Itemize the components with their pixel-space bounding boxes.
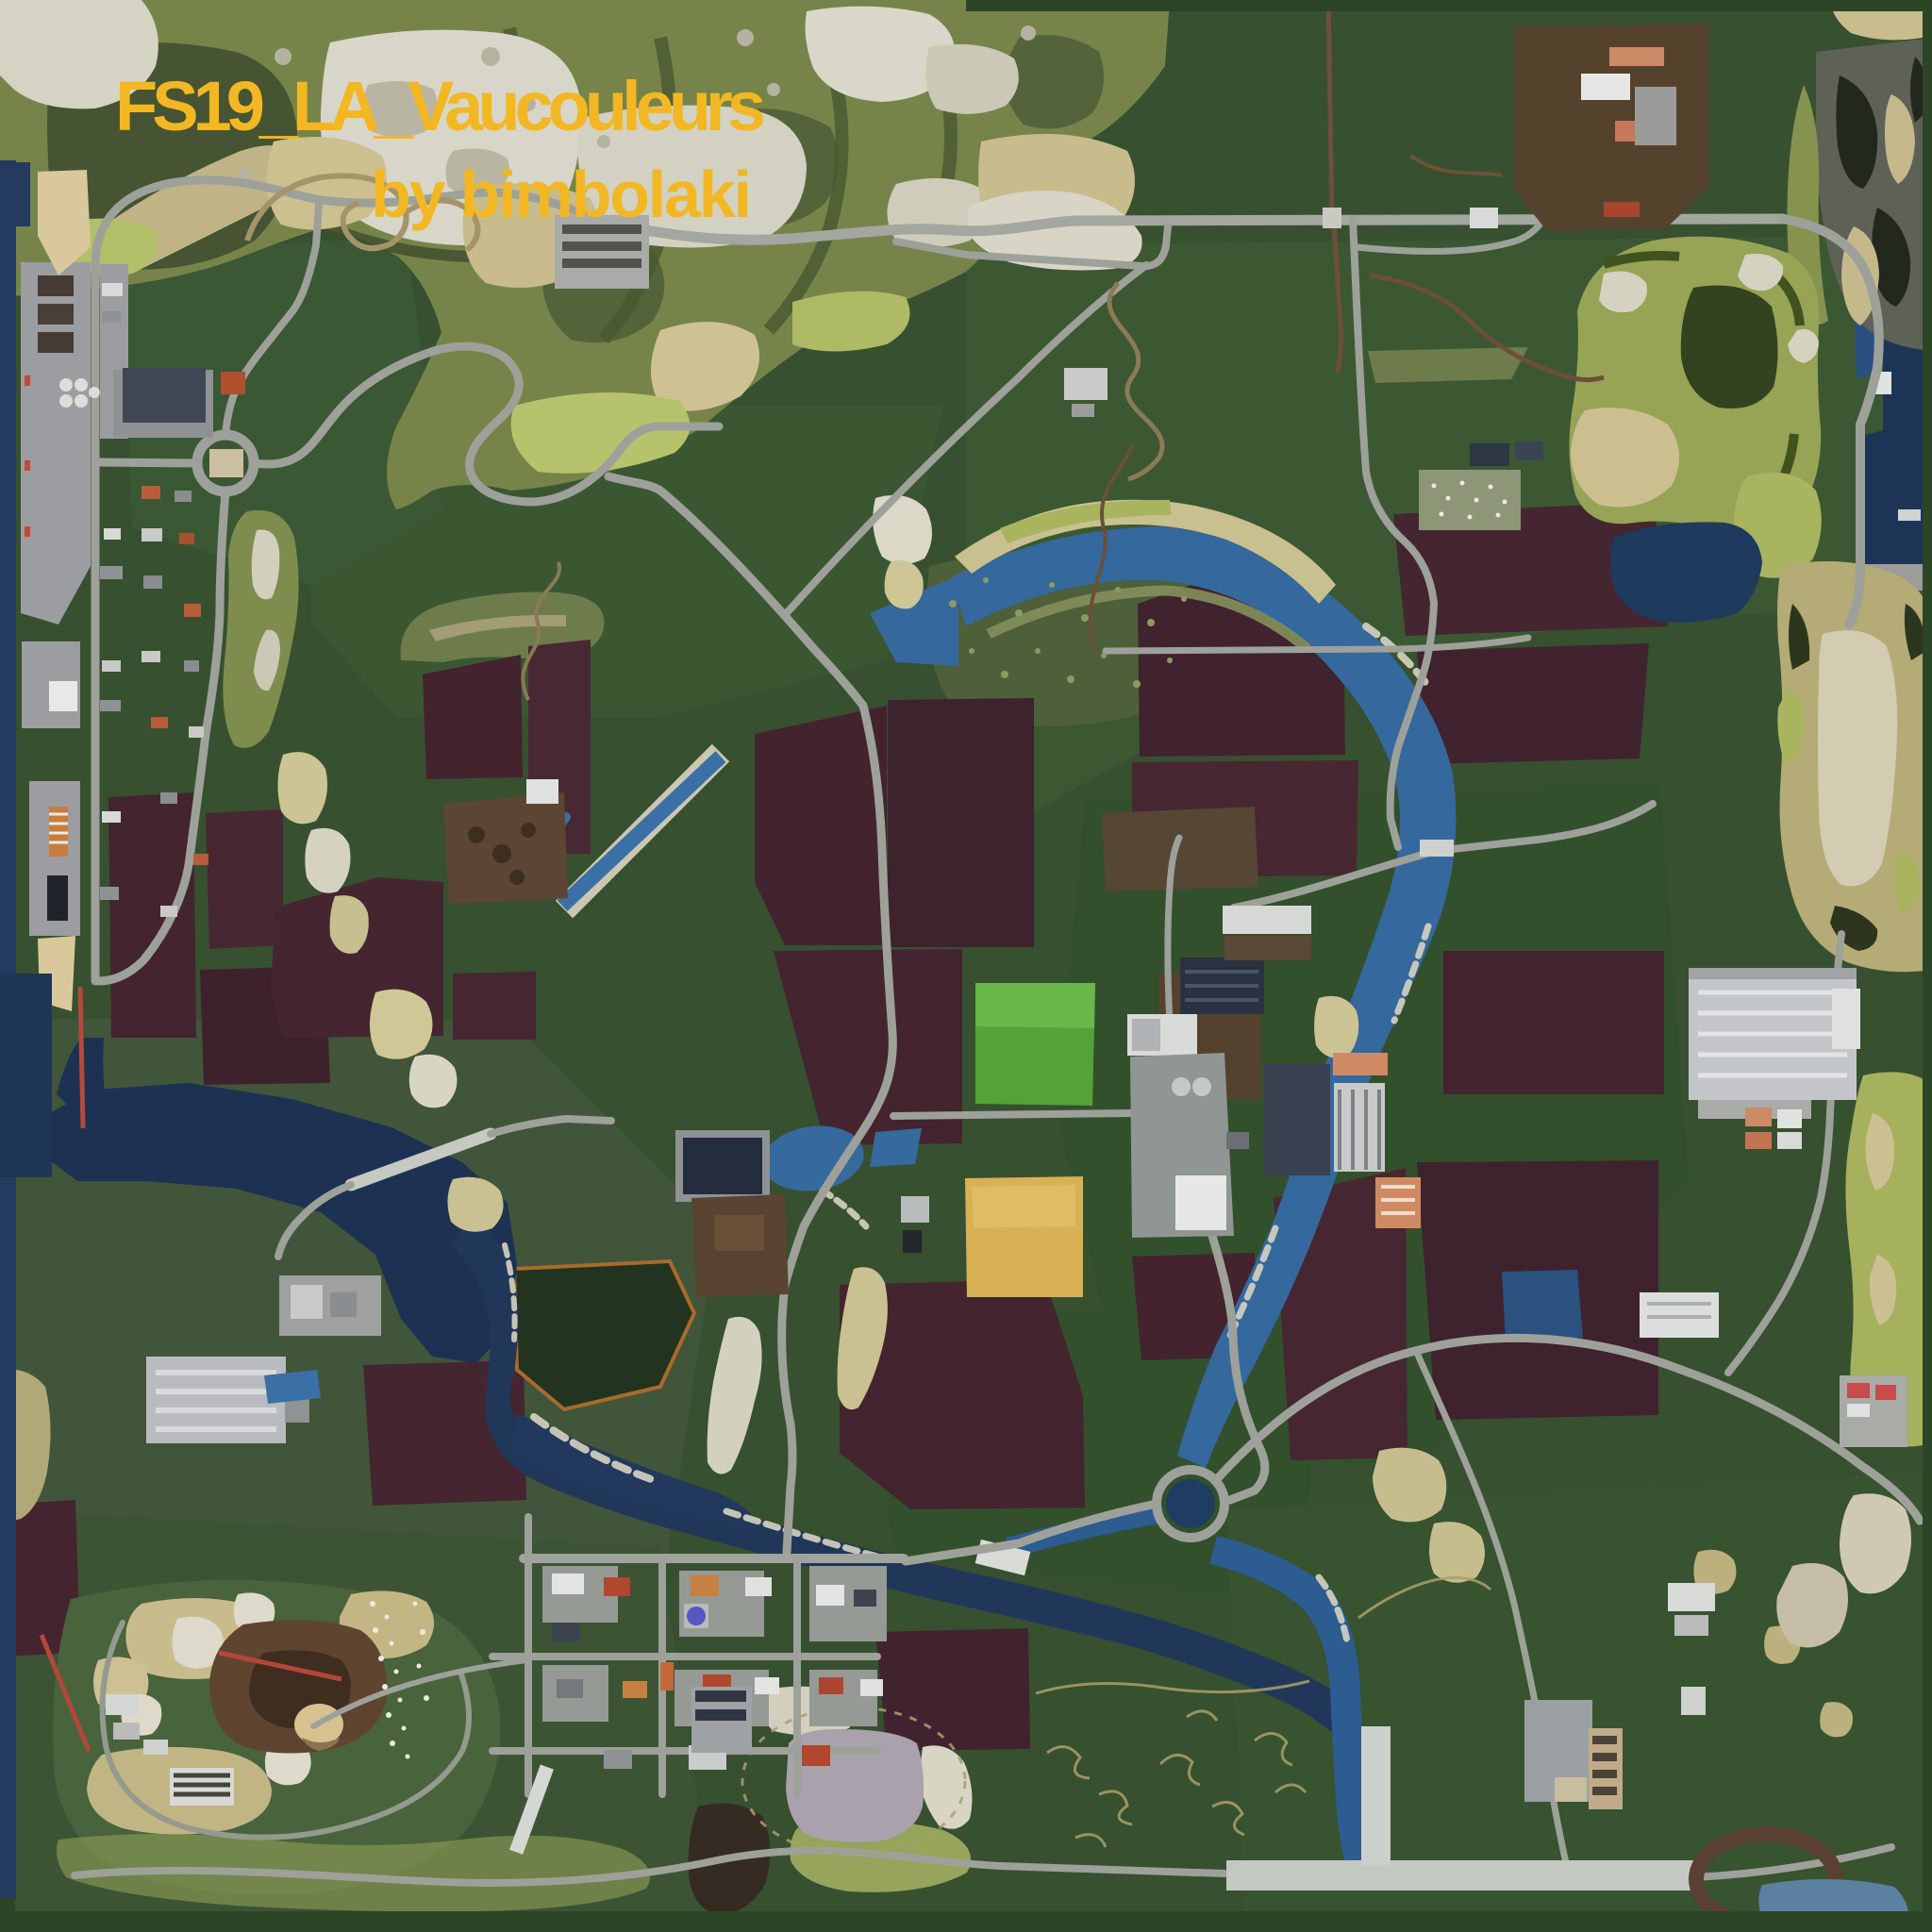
svg-text:by bimbolaki: by bimbolaki	[371, 158, 752, 231]
svg-text:FS19_LA_Vaucouleurs: FS19_LA_Vaucouleurs	[115, 67, 766, 145]
